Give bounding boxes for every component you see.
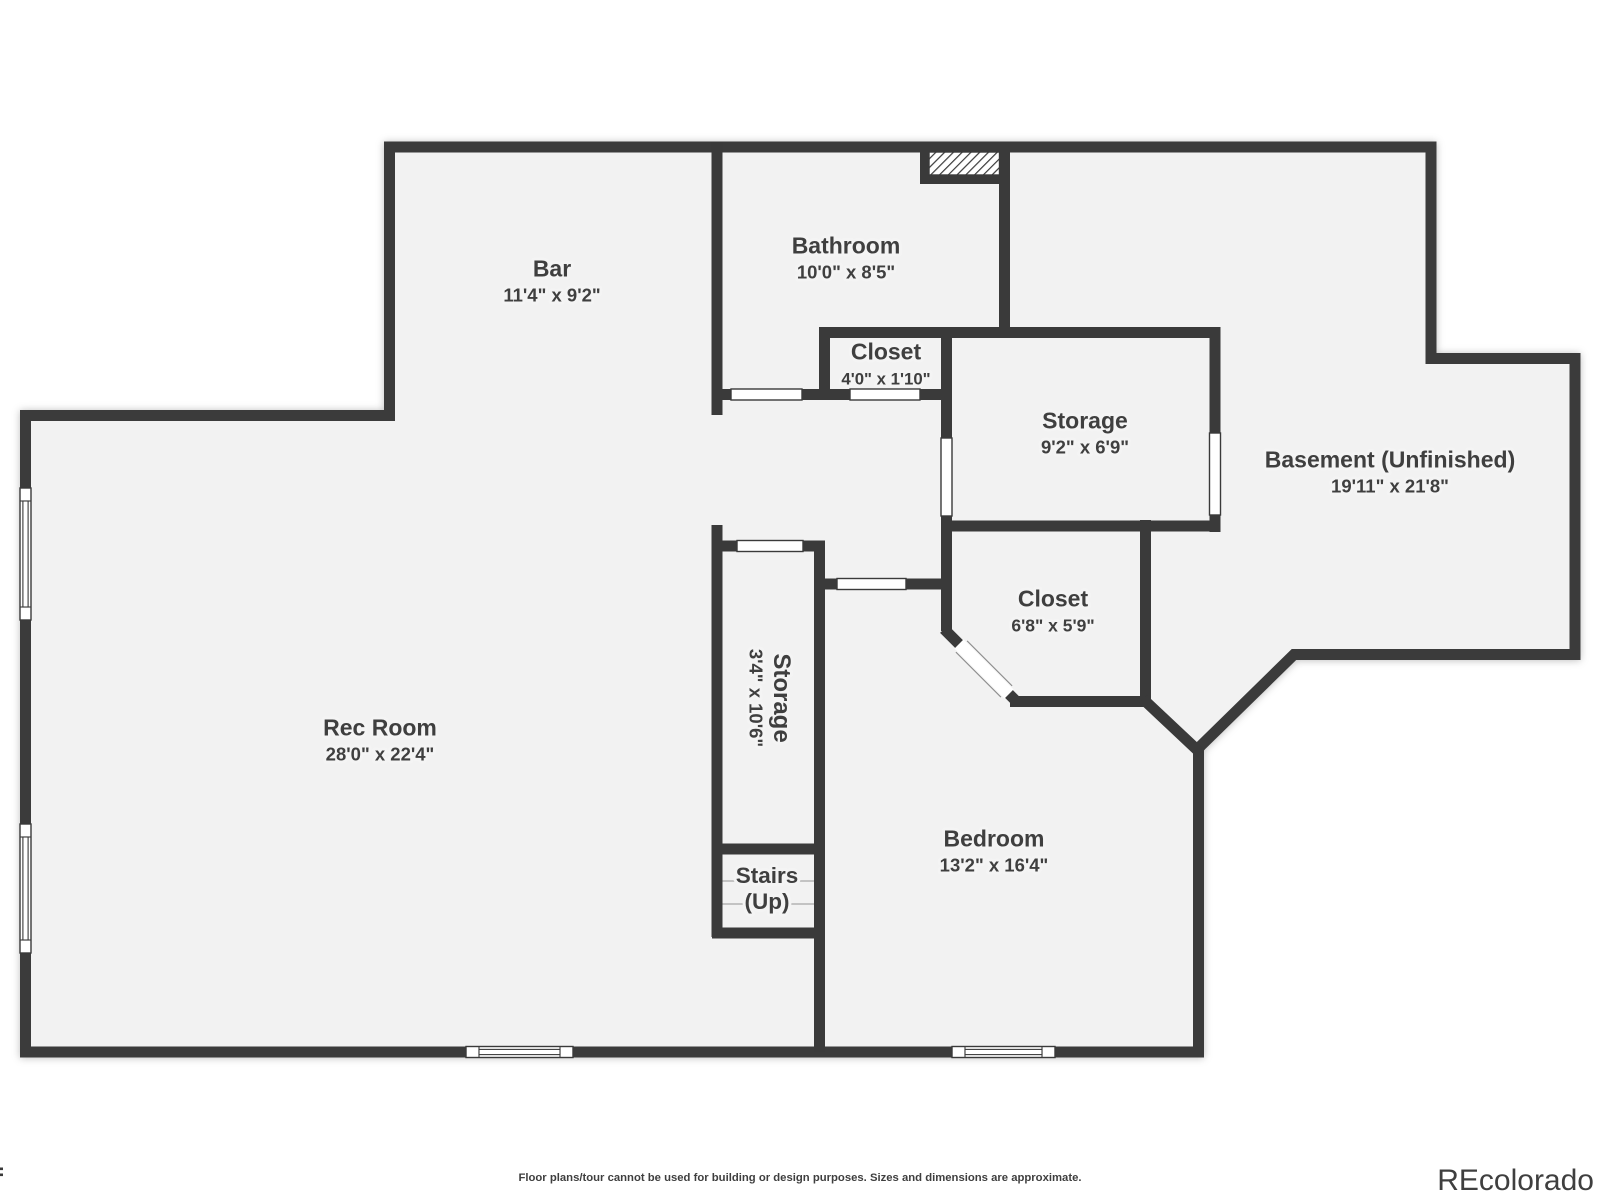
svg-text:28'0" x 22'4": 28'0" x 22'4": [326, 744, 435, 765]
svg-text:10'0" x 8'5": 10'0" x 8'5": [797, 262, 895, 283]
svg-text:Closet: Closet: [1018, 586, 1089, 612]
svg-text:REcolorado: REcolorado: [1437, 1164, 1594, 1197]
svg-text:19'11" x 21'8": 19'11" x 21'8": [1331, 476, 1449, 497]
svg-text:Storage: Storage: [768, 653, 795, 742]
svg-text:Closet: Closet: [851, 339, 922, 365]
svg-text:4'0" x 1'10": 4'0" x 1'10": [841, 370, 930, 389]
svg-text:Bedroom: Bedroom: [944, 826, 1045, 852]
svg-text:11'4" x 9'2": 11'4" x 9'2": [503, 285, 600, 306]
svg-text:Floor plans/tour cannot be use: Floor plans/tour cannot be used for buil…: [518, 1172, 1081, 1184]
svg-text:9'2" x 6'9": 9'2" x 6'9": [1041, 437, 1129, 458]
svg-text:Bathroom: Bathroom: [792, 233, 901, 259]
svg-text:3'4" x 10'6": 3'4" x 10'6": [746, 649, 767, 747]
svg-text:Basement (Unfinished): Basement (Unfinished): [1265, 447, 1515, 473]
svg-text:Rec Room: Rec Room: [323, 715, 437, 741]
svg-text:Stairs: Stairs: [736, 863, 799, 888]
svg-text:13'2" x 16'4": 13'2" x 16'4": [940, 855, 1049, 876]
svg-text:6'8" x 5'9": 6'8" x 5'9": [1011, 616, 1094, 636]
svg-text:(Up): (Up): [745, 889, 790, 914]
svg-text:Storage: Storage: [1042, 408, 1128, 434]
svg-text:Bar: Bar: [533, 256, 571, 282]
